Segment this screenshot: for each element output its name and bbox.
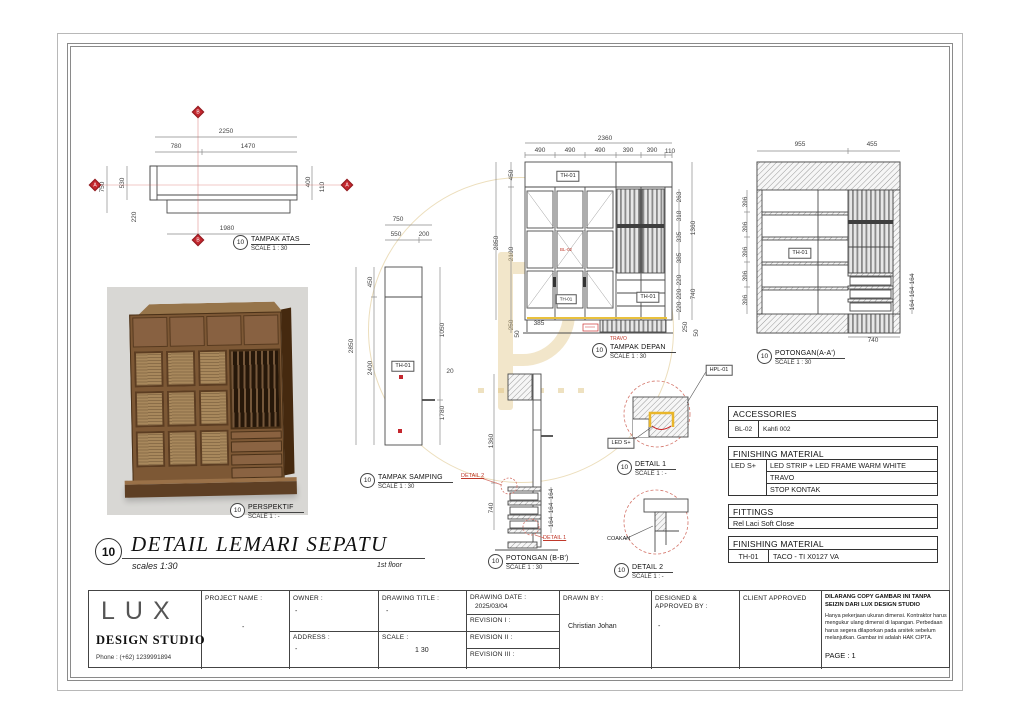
company-subtitle: DESIGN STUDIO [96, 633, 205, 648]
view-scale: SCALE 1 : 30 [506, 564, 579, 571]
divider [739, 591, 740, 669]
view-name: PERSPEKTIF [248, 503, 304, 513]
title-underline [122, 558, 425, 559]
drawer-face [231, 440, 282, 452]
divider [201, 591, 202, 669]
table-cell-code: BL-02 [729, 421, 759, 438]
view-scale: SCALE 1 : 30 [251, 245, 310, 252]
view-label-tampak-depan: 10 TAMPAK DEPANSCALE 1 : 30 [592, 343, 676, 360]
material-tag: TH-01 [636, 292, 659, 303]
handle-note: BL-02 [560, 248, 572, 253]
field-label: OWNER : [293, 595, 323, 603]
hpl-callout: HPL-01 [706, 365, 733, 376]
material-tag: TH-01 [556, 294, 577, 304]
drawer-face [231, 453, 282, 465]
table-row: TRAVO [767, 472, 937, 484]
view-label-tampak-atas: 10 TAMPAK ATASSCALE 1 : 30 [233, 235, 310, 252]
field-label: SCALE : [382, 634, 408, 642]
disclaimer-body: Hanya pekerjaan ukuran dimensi. Kontrakt… [825, 613, 947, 642]
tampak-depan-linework [485, 125, 725, 360]
field-value: 2025/03/04 [475, 603, 508, 610]
cabinet-door-top [243, 315, 279, 346]
view-name: DETAIL 2 [632, 563, 673, 573]
divider [378, 591, 379, 669]
view-number: 10 [757, 349, 772, 364]
view-number: 10 [614, 563, 629, 578]
divider [466, 648, 560, 649]
view-name: TAMPAK SAMPING [378, 473, 453, 483]
cabinet-3d [105, 285, 311, 517]
cabinet-front-face [129, 311, 284, 482]
divider [466, 614, 560, 615]
cabinet-door-top [169, 316, 205, 347]
table-header: FINISHING MATERIAL [729, 537, 937, 550]
view-number: 10 [233, 235, 248, 250]
led-callout: LED S+ [607, 438, 634, 449]
view-scale: SCALE 1 : - [248, 513, 304, 520]
main-title-circle: 10 [95, 538, 122, 565]
view-number: 10 [592, 343, 607, 358]
field-label: CLIENT APPROVED [743, 595, 807, 603]
cabinet-door-top [206, 315, 242, 346]
divider [466, 591, 467, 669]
title-floor-note: 1st floor [377, 562, 402, 569]
field-value: - [386, 608, 388, 615]
page-title: DETAIL LEMARI SEPATU [131, 532, 388, 557]
view-label-detail-2: 10 DETAIL 2SCALE 1 : - [614, 563, 673, 580]
accessories-table: ACCESSORIES BL-02 Kahfi 002 [728, 406, 938, 438]
divider [821, 591, 822, 669]
cabinet-door-top [132, 317, 168, 348]
view-scale: SCALE 1 : 30 [775, 359, 845, 366]
divider [651, 591, 652, 669]
view-number: 10 [488, 554, 503, 569]
cabinet-side-panel [281, 307, 294, 475]
table-header: FINISHING MATERIAL [729, 447, 937, 460]
view-label-potongan-aa: 10 POTONGAN(A-A')SCALE 1 : 30 [757, 349, 845, 366]
view-label-tampak-samping: 10 TAMPAK SAMPINGSCALE 1 : 30 [360, 473, 453, 490]
table-header: ACCESSORIES [729, 407, 937, 421]
view-name: DETAIL 1 [635, 460, 676, 470]
view-name: TAMPAK DEPAN [610, 343, 676, 353]
rattan-panel [134, 351, 164, 388]
field-value: - [658, 623, 660, 630]
view-number: 10 [230, 503, 245, 518]
bench-top [231, 430, 282, 439]
outlet-symbol [399, 375, 403, 379]
view-label-perspektif: 10 PERSPEKTIFSCALE 1 : - [230, 503, 304, 520]
field-label: REVISION I : [470, 617, 511, 625]
material-tag: TH-01 [391, 361, 414, 372]
cabinet-plinth [125, 481, 297, 498]
field-label: DRAWING TITLE : [382, 595, 439, 603]
view-number: 10 [360, 473, 375, 488]
rattan-panel [168, 430, 198, 467]
coakan-callout: COAKAN [607, 537, 630, 543]
rattan-panel [166, 350, 196, 387]
title-scale-note: scales 1:30 [132, 561, 178, 571]
detail-1-note: DETAIL 1 [543, 536, 566, 542]
table-cell-desc: Kahfi 002 [759, 421, 790, 438]
view-name: POTONGAN(A-A') [775, 349, 845, 359]
field-label: PROJECT NAME : [205, 595, 262, 603]
material-tag: TH-01 [788, 248, 811, 259]
view-scale: SCALE 1 : 30 [610, 353, 676, 360]
field-label: DRAWING DATE : [470, 594, 526, 602]
rattan-panel [136, 431, 166, 468]
fittings-table: FITTINGS Rel Laci Soft Close [728, 504, 938, 529]
travo-note: TRAVO [610, 337, 627, 342]
divider [289, 631, 379, 632]
view-name: POTONGAN (B-B') [506, 554, 579, 564]
perspective-image [107, 287, 308, 515]
view-number: 10 [617, 460, 632, 475]
finishing-material-table-2: FINISHING MATERIAL TH-01 TACO - TI X0127… [728, 536, 938, 563]
table-row: STOP KONTAK [767, 484, 937, 495]
company-logo: LUX [101, 597, 180, 626]
divider [466, 631, 560, 632]
field-value: Christian Johan [568, 623, 617, 630]
potongan-bb-linework [455, 365, 605, 565]
table-cell-code: LED S+ [729, 460, 767, 495]
rattan-panel [198, 350, 228, 387]
field-value: 1 30 [415, 647, 429, 654]
table-header: FITTINGS [729, 505, 937, 518]
field-label: ADDRESS : [293, 634, 330, 642]
view-label-detail-1: 10 DETAIL 1SCALE 1 : - [617, 460, 676, 477]
finishing-material-table-1: FINISHING MATERIAL LED S+ LED STRIP + LE… [728, 446, 938, 496]
table-row: Rel Laci Soft Close [729, 518, 937, 529]
rattan-panel [200, 430, 230, 467]
field-value: - [242, 624, 244, 631]
field-label: DRAWN BY : [563, 595, 603, 603]
view-scale: SCALE 1 : - [632, 573, 673, 580]
divider [289, 591, 290, 669]
tampak-atas-linework [90, 105, 360, 255]
view-scale: SCALE 1 : 30 [378, 483, 453, 490]
open-shelf-slats [229, 348, 282, 429]
rattan-panel [167, 390, 197, 427]
main-title-number: 10 [102, 545, 115, 559]
page-number: PAGE : 1 [825, 651, 856, 660]
disclaimer-title: DILARANG COPY GAMBAR INI TANPA SEIZIN DA… [825, 594, 946, 609]
company-phone: Phone : (+62) 1239991894 [96, 654, 171, 661]
rattan-panel [135, 391, 165, 428]
view-name: TAMPAK ATAS [251, 235, 310, 245]
field-label: REVISION II : [470, 634, 513, 642]
field-label: REVISION III : [470, 651, 515, 659]
detail-2-note: DETAIL 2 [461, 474, 484, 480]
outlet-symbol [398, 429, 402, 433]
table-cell-code: TH-01 [729, 550, 769, 563]
view-label-potongan-bb: 10 POTONGAN (B-B')SCALE 1 : 30 [488, 554, 579, 571]
material-tag: TH-01 [556, 171, 579, 182]
field-value: - [295, 646, 297, 653]
potongan-aa-linework [735, 130, 950, 375]
view-scale: SCALE 1 : - [635, 470, 676, 477]
title-block: LUX DESIGN STUDIO Phone : (+62) 12399918… [88, 590, 950, 668]
divider [559, 591, 560, 669]
rattan-panel [199, 390, 229, 427]
divider [378, 631, 467, 632]
field-value: - [295, 608, 297, 615]
table-cell-desc: TACO - TI X0127 VA [769, 550, 839, 563]
table-row: LED STRIP + LED FRAME WARM WHITE [767, 460, 937, 472]
field-label: DESIGNED & APPROVED BY : [655, 595, 730, 612]
